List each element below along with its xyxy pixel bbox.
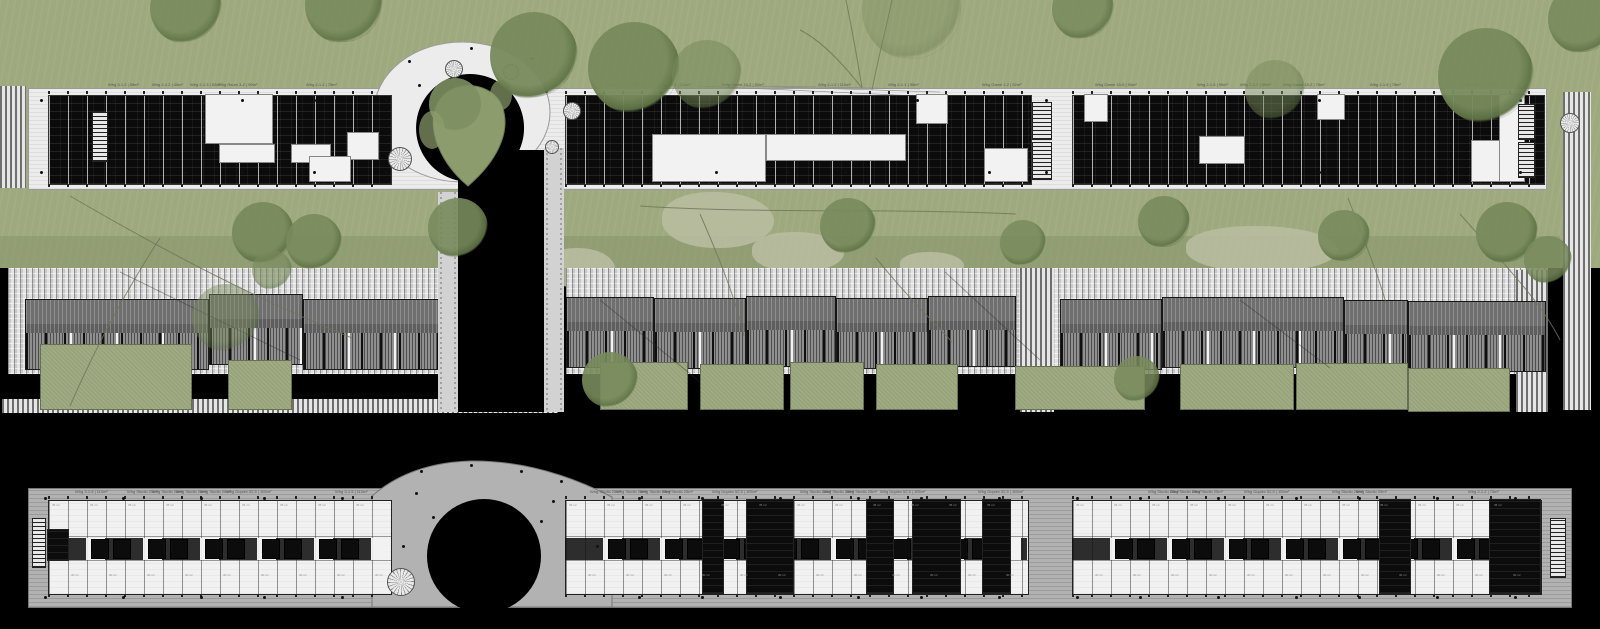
room-area-text: 35 m²	[645, 504, 653, 507]
deck-column-dot	[1514, 596, 1517, 599]
room-area-text: 30 m²	[1209, 574, 1217, 577]
room-area-text: 30 m²	[1399, 574, 1407, 577]
deck-column-dot	[1189, 99, 1192, 102]
deck-column-dot	[701, 497, 704, 500]
dark-apartment	[48, 530, 68, 560]
room-area-text: 35 m²	[1228, 504, 1236, 507]
corridor-cell	[609, 540, 625, 558]
dark-apartment	[747, 500, 793, 593]
deck-column-dot	[470, 464, 473, 467]
deck-column-dot	[779, 497, 782, 500]
room-area-text: 35 m²	[90, 504, 98, 507]
tree-canopy	[192, 284, 260, 352]
deck-column-dot	[1390, 99, 1393, 102]
dark-apartment	[867, 500, 893, 593]
room-area-text: 35 m²	[128, 504, 136, 507]
room-area-text: 35 m²	[1076, 504, 1084, 507]
room-area-text: 30 m²	[626, 574, 634, 577]
room-area-text: 35 m²	[721, 504, 729, 507]
room-area-text: 35 m²	[987, 504, 995, 507]
room-area-text: 35 m²	[1494, 504, 1502, 507]
site-plan-canvas: 35 m²30 m²35 m²30 m²35 m²30 m²35 m²30 m²…	[0, 0, 1600, 629]
room-area-text: 35 m²	[835, 504, 843, 507]
tree-canopy	[820, 198, 876, 254]
deck-column-dot	[263, 497, 266, 500]
room-area-text: 30 m²	[1323, 574, 1331, 577]
deck-column-dot	[920, 497, 923, 500]
deck-column-dot	[1519, 171, 1522, 174]
deck-column-dot	[844, 99, 847, 102]
deck-column-dot	[1139, 497, 1142, 500]
room-area-text: 35 m²	[1380, 504, 1388, 507]
deck-column-dot	[596, 545, 599, 548]
room-area-text: 35 m²	[797, 504, 805, 507]
deck-column-dot	[341, 596, 344, 599]
deck-column-dot	[184, 171, 187, 174]
deck-column-dot	[638, 596, 641, 599]
deck-column-dot	[1246, 171, 1249, 174]
room-area-text: 30 m²	[1171, 574, 1179, 577]
room-area-text: 35 m²	[1342, 504, 1350, 507]
deck-column-dot	[520, 470, 523, 473]
deck-column-dot	[341, 497, 344, 500]
balcony-posts	[48, 594, 390, 597]
deck-column-dot	[263, 596, 266, 599]
deck-column-dot	[643, 171, 646, 174]
apartment-label: Whg Studio 25m²	[1356, 490, 1387, 494]
deck-column-dot	[560, 480, 563, 483]
deck-column-dot	[313, 171, 316, 174]
room-area-text: 30 m²	[109, 574, 117, 577]
apartment-label: Whg 2-1.2 | 75m²	[1468, 490, 1499, 494]
deck-column-dot	[122, 596, 125, 599]
dark-apartment	[983, 500, 1010, 593]
apartment-label: Whg Duplex 52,5 | 105m²	[978, 490, 1023, 494]
deck-column-dot	[1436, 596, 1439, 599]
apartment-label: Whg Duplex 52,5 | 105m²	[226, 490, 271, 494]
corridor-cell	[92, 540, 108, 558]
deck-column-dot	[787, 99, 790, 102]
room-area-text: 35 m²	[280, 504, 288, 507]
deck-column-dot	[415, 492, 418, 495]
deck-column-dot	[44, 497, 47, 500]
spiral-stair	[387, 568, 415, 596]
deck-column-dot	[586, 171, 589, 174]
room-area-text: 30 m²	[1475, 574, 1483, 577]
room-area-text: 35 m²	[356, 504, 364, 507]
corridor-cell	[723, 540, 739, 558]
deck-column-dot	[857, 596, 860, 599]
room-area-text: 30 m²	[261, 574, 269, 577]
tree-canopy	[1000, 220, 1046, 266]
deck-column-dot	[1295, 497, 1298, 500]
room-area-text: 30 m²	[930, 574, 938, 577]
tree-canopy	[286, 214, 342, 270]
corridor-cell	[1287, 540, 1303, 558]
room-area-text: 30 m²	[337, 574, 345, 577]
tree-canopy	[1114, 356, 1160, 402]
deck-column-dot	[385, 99, 388, 102]
apartment-label: Whg Studio 25m²	[662, 490, 693, 494]
tree-canopy	[1245, 60, 1305, 120]
apartment-label: Whg 2-1.3 | 52m²	[190, 83, 221, 87]
deck-column-dot	[241, 171, 244, 174]
deck-column-dot	[1139, 596, 1142, 599]
dark-apartment	[913, 500, 960, 593]
deck-column-dot	[1045, 99, 1048, 102]
room-area-text: 35 m²	[52, 504, 60, 507]
deck-column-dot	[1295, 596, 1298, 599]
tree-canopy	[1138, 196, 1190, 248]
deck-column-dot	[1076, 596, 1079, 599]
corridor-cell	[1116, 540, 1132, 558]
room-area-text: 30 m²	[854, 574, 862, 577]
deck-column-dot	[470, 47, 473, 50]
apartment-label: Whg Duplex 52,5 | 105m²	[880, 490, 925, 494]
tree-canopy	[672, 40, 742, 110]
deck-column-dot	[638, 497, 641, 500]
room-area-text: 35 m²	[911, 504, 919, 507]
deck-column-dot	[241, 99, 244, 102]
deck-column-dot	[540, 520, 543, 523]
apartment-label: Whg 2-1.5 | 90m²	[1197, 83, 1228, 87]
room-area-text: 30 m²	[1361, 574, 1369, 577]
deck-column-dot	[988, 171, 991, 174]
corridor-cell	[1344, 540, 1360, 558]
deck-column-dot	[44, 596, 47, 599]
room-area-text: 30 m²	[375, 574, 383, 577]
stair-core	[32, 518, 46, 568]
room-area-text: 30 m²	[1437, 574, 1445, 577]
deck-column-dot	[1217, 596, 1220, 599]
apartment-label: Whg 3-1.2 | 55m²	[108, 83, 139, 87]
deck-column-dot	[200, 497, 203, 500]
corridor-cell	[894, 540, 910, 558]
deck-column-dot	[1514, 497, 1517, 500]
corridor-cell	[1309, 540, 1325, 558]
room-area-text: 35 m²	[569, 504, 577, 507]
room-area-text: 35 m²	[1152, 504, 1160, 507]
room-area-text: 30 m²	[892, 574, 900, 577]
deck-column-dot	[1045, 171, 1048, 174]
balcony-posts	[1072, 496, 1540, 499]
deck-column-dot	[1217, 497, 1220, 500]
deck-column-dot	[418, 84, 421, 87]
deck-column-dot	[122, 497, 125, 500]
corridor-cell	[171, 540, 187, 558]
room-area-text: 35 m²	[1114, 504, 1122, 507]
tree-canopy	[582, 352, 638, 408]
deck-column-dot	[779, 596, 782, 599]
deck-column-dot	[184, 99, 187, 102]
deck-column-dot	[844, 171, 847, 174]
dark-apartment	[703, 500, 723, 593]
tree-canopy	[1318, 210, 1370, 262]
corridor-cell	[320, 540, 336, 558]
deck-column-dot	[787, 171, 790, 174]
deck-column-dot	[1117, 99, 1120, 102]
apartment-label: Whg 2-1.5 | 75m²	[1370, 83, 1401, 87]
deck-column-dot	[998, 596, 1001, 599]
deck-column-dot	[420, 470, 423, 473]
apartment-label: Whg Game 1-2 | 92m²	[982, 83, 1022, 87]
balcony-posts	[565, 496, 1027, 499]
room-area-text: 30 m²	[71, 574, 79, 577]
room-area-text: 30 m²	[740, 574, 748, 577]
deck-column-dot	[1436, 497, 1439, 500]
corridor-cell	[1195, 540, 1211, 558]
deck-column-dot	[1076, 497, 1079, 500]
apartment-label: Whg Studio 25m²	[1192, 490, 1223, 494]
corridor-cell	[206, 540, 222, 558]
apartment-label: Whg 2-1.1 | 75m²	[306, 83, 337, 87]
room-area-text: 30 m²	[1133, 574, 1141, 577]
room-area-text: 30 m²	[816, 574, 824, 577]
deck-column-dot	[586, 99, 589, 102]
corridor-cell	[1230, 540, 1246, 558]
apartment-label: Whg Duplex 52,5 | 105m²	[712, 490, 757, 494]
corridor-cell	[285, 540, 301, 558]
corridor-cell	[1252, 540, 1268, 558]
corridor-cell	[688, 540, 704, 558]
room-area-text: 30 m²	[185, 574, 193, 577]
balcony-posts	[48, 496, 390, 499]
corridor-cell	[837, 540, 853, 558]
apartment-label: Whg 3-1.5 | 110m²	[75, 490, 108, 494]
room-area-text: 35 m²	[1266, 504, 1274, 507]
room-area-text: 30 m²	[588, 574, 596, 577]
room-area-text: 35 m²	[1190, 504, 1198, 507]
deck-column-dot	[1447, 171, 1450, 174]
room-area-text: 35 m²	[873, 504, 881, 507]
room-area-text: 30 m²	[147, 574, 155, 577]
room-area-text: 35 m²	[1456, 504, 1464, 507]
apartment-label: Whg Duplex 52,5 | 105m²	[1244, 490, 1289, 494]
deck-column-dot	[1390, 171, 1393, 174]
corridor-cell	[1138, 540, 1154, 558]
room-area-text: 30 m²	[299, 574, 307, 577]
tree-canopy	[428, 198, 488, 258]
corridor-cell	[1173, 540, 1189, 558]
room-area-text: 30 m²	[664, 574, 672, 577]
tree-canopy	[588, 22, 680, 114]
deck-column-dot	[112, 99, 115, 102]
deck-column-dot	[313, 99, 316, 102]
room-area-text: 35 m²	[607, 504, 615, 507]
deck-column-dot	[1117, 171, 1120, 174]
deck-column-dot	[40, 99, 43, 102]
apartment-label: Whg 2-1.1 | 55m²	[888, 83, 919, 87]
deck-column-dot	[1189, 171, 1192, 174]
room-area-text: 35 m²	[683, 504, 691, 507]
deck-column-dot	[857, 497, 860, 500]
deck-column-dot	[916, 99, 919, 102]
apartment-label: Whg Studio 25m²	[846, 490, 877, 494]
apartment-label: Whg Raum 3-2 | 90m²	[218, 83, 257, 87]
deck-column-dot	[552, 500, 555, 503]
room-area-text: 30 m²	[968, 574, 976, 577]
deck-column-dot	[432, 516, 435, 519]
corridor-cell	[263, 540, 279, 558]
room-area-text: 35 m²	[318, 504, 326, 507]
deck-column-dot	[40, 171, 43, 174]
deck-column-dot	[715, 171, 718, 174]
tree-canopy	[1438, 28, 1534, 124]
tree-canopy	[490, 12, 578, 100]
deck-column-dot	[1318, 99, 1321, 102]
room-area-text: 35 m²	[242, 504, 250, 507]
room-area-text: 30 m²	[223, 574, 231, 577]
corridor-cell	[228, 540, 244, 558]
room-area-text: 30 m²	[702, 574, 710, 577]
room-area-text: 35 m²	[759, 504, 767, 507]
balcony-posts	[565, 594, 1027, 597]
corridor-cell	[802, 540, 818, 558]
corridor-cell	[342, 540, 358, 558]
room-area-text: 35 m²	[1304, 504, 1312, 507]
room-area-text: 30 m²	[1095, 574, 1103, 577]
corridor-cell	[149, 540, 165, 558]
corridor-cell	[1458, 540, 1474, 558]
deck-column-dot	[701, 596, 704, 599]
dark-apartment	[1490, 500, 1540, 593]
balcony-posts	[1072, 594, 1540, 597]
corridor-cell	[114, 540, 130, 558]
apartment-label: Whg 2-1.2 | 110m²	[818, 83, 851, 87]
deck-column-dot	[1358, 497, 1361, 500]
room-area-text: 35 m²	[166, 504, 174, 507]
room-area-text: 30 m²	[1247, 574, 1255, 577]
room-area-text: 30 m²	[1513, 574, 1521, 577]
dark-apartment	[1380, 500, 1410, 593]
deck-column-dot	[1318, 171, 1321, 174]
tree-canopy	[252, 250, 292, 290]
room-area-text: 35 m²	[1418, 504, 1426, 507]
stair-core	[1550, 518, 1566, 578]
deck-column-dot	[1358, 596, 1361, 599]
deck-column-dot	[402, 545, 405, 548]
deck-column-dot	[200, 596, 203, 599]
deck-column-dot	[998, 497, 1001, 500]
deck-column-dot	[408, 60, 411, 63]
room-area-text: 30 m²	[778, 574, 786, 577]
deck-column-dot	[112, 171, 115, 174]
corridor-cell	[631, 540, 647, 558]
tree-canopy	[1524, 236, 1572, 284]
corridor-cell	[1423, 540, 1439, 558]
deck-column-dot	[988, 99, 991, 102]
room-area-text: 35 m²	[204, 504, 212, 507]
deck-column-dot	[385, 171, 388, 174]
room-area-text: 30 m²	[1006, 574, 1014, 577]
room-area-text: 30 m²	[1285, 574, 1293, 577]
apartment-label: Whg 3-1.5 | 110m²	[335, 490, 368, 494]
apartment-label: Whg 2-1.2 | 45m²	[152, 83, 183, 87]
deck-column-dot	[920, 596, 923, 599]
deck-column-dot	[916, 171, 919, 174]
apartment-label: Whg Game 15-5 | 90m²	[1095, 83, 1137, 87]
room-area-text: 35 m²	[949, 504, 957, 507]
corridor-cell	[666, 540, 682, 558]
